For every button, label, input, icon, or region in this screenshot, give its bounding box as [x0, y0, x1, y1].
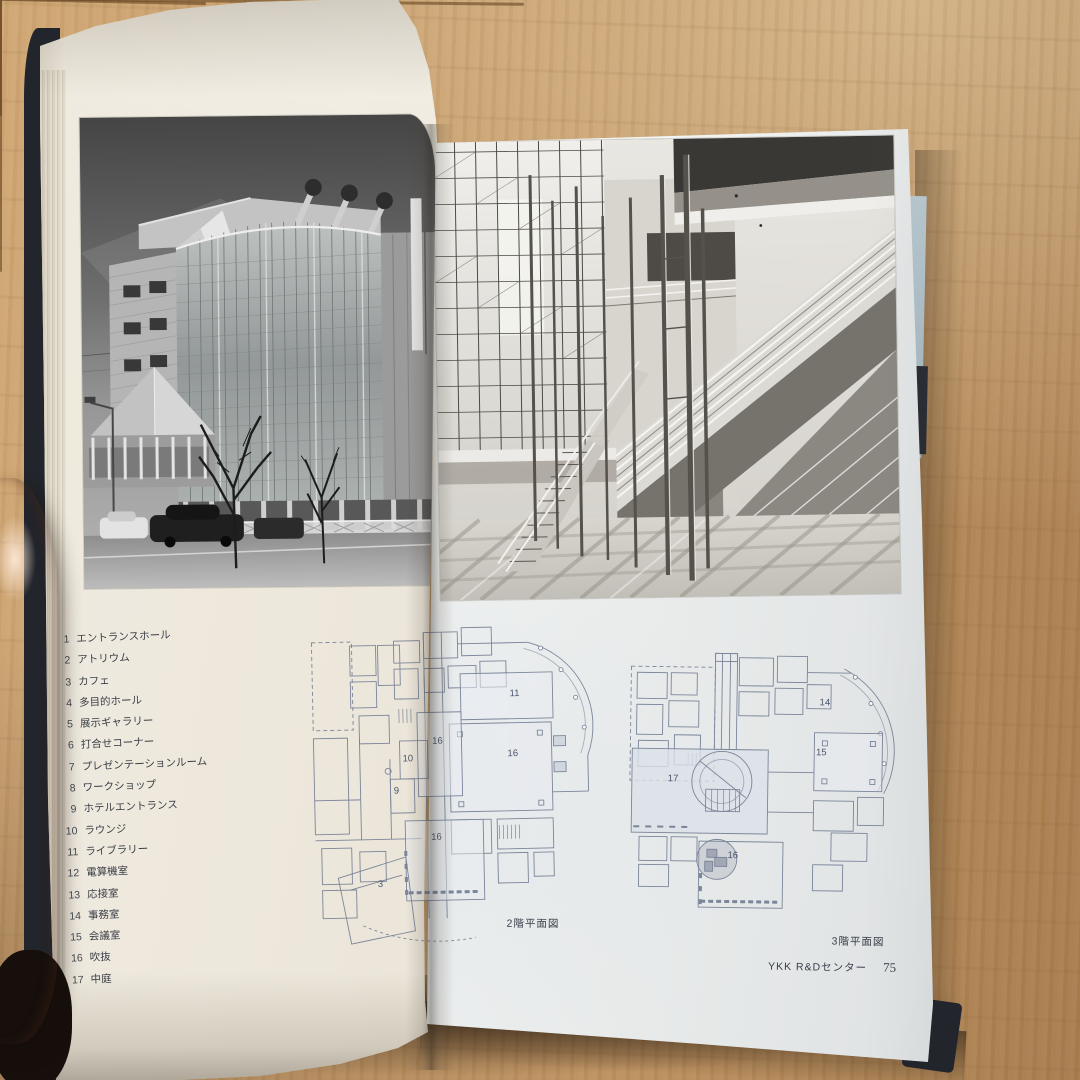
legend-item-number: 7 [59, 757, 75, 779]
legend-item-number: 8 [60, 778, 76, 800]
legend-item-label: 会議室 [88, 926, 120, 949]
right-page-footer: YKK R&Dセンター 75 [768, 958, 928, 977]
legend-item-label: ラウンジ [84, 819, 127, 842]
legend-item-number: 16 [67, 949, 83, 971]
floor-plan-3f: 14151716 [616, 630, 910, 914]
building-exterior-photo [80, 114, 440, 589]
thumb-holding-page [0, 478, 58, 1044]
caption-plan-2f: 2階平面図 [478, 916, 588, 932]
caption-plan-3f: 3階平面図 [806, 933, 910, 950]
legend-item-number: 14 [66, 906, 82, 928]
building-photo-art [80, 114, 440, 589]
legend-item-number: 11 [63, 842, 79, 864]
legend-item-label: 電算機室 [86, 861, 129, 884]
legend-item-label: アトリウム [77, 648, 130, 671]
floor-plank-joint [0, 0, 2, 272]
interior-photo-art [433, 135, 900, 600]
room-number: 15 [816, 748, 827, 759]
legend-item-label: 展示ギャラリー [80, 711, 154, 735]
legend-item-number: 4 [57, 693, 73, 715]
footer-title: YKK R&Dセンター [768, 959, 867, 976]
legend-item-number: 5 [58, 714, 74, 736]
photo-of-open-book-on-wood-floor: YKK R&D [0, 0, 1080, 1080]
legend-item-number: 6 [58, 736, 74, 758]
room-legend: 1 エントランスホール 2 アトリウム 3 カフェ 4 多目的ホール [54, 620, 319, 992]
atrium-interior-photo [433, 135, 900, 600]
room-number: 16 [727, 850, 738, 861]
legend-item-number: 17 [68, 970, 84, 992]
legend-item-label: 吹抜 [89, 947, 111, 969]
legend-item-label: ライブラリー [85, 839, 149, 863]
legend-item-label: 打合せコーナー [80, 732, 154, 756]
legend-item-number: 13 [65, 885, 81, 907]
legend-item-label: エントランスホール [76, 625, 171, 650]
legend-item-number: 12 [64, 863, 80, 885]
legend-item-number: 3 [56, 672, 72, 694]
legend-item-number: 15 [66, 927, 82, 949]
legend-item-number: 9 [61, 800, 77, 822]
legend-item-label: ホテルエントランス [83, 795, 178, 820]
plan-3f-room-numbers: 14151716 [616, 630, 910, 914]
page-number-75: 75 [883, 960, 896, 976]
legend-item-label: 事務室 [88, 904, 120, 927]
floor-plan-3f-drawing [616, 630, 910, 914]
legend-item-label: ワークショップ [82, 775, 156, 799]
legend-item-label: 応接室 [87, 883, 119, 906]
legend-item-label: 中庭 [90, 969, 112, 991]
room-number: 17 [668, 774, 679, 785]
legend-item-number: 10 [62, 821, 78, 843]
room-number: 14 [819, 697, 830, 708]
legend-item-label: カフェ [78, 670, 110, 693]
legend-item-label: 多目的ホール [79, 690, 143, 714]
